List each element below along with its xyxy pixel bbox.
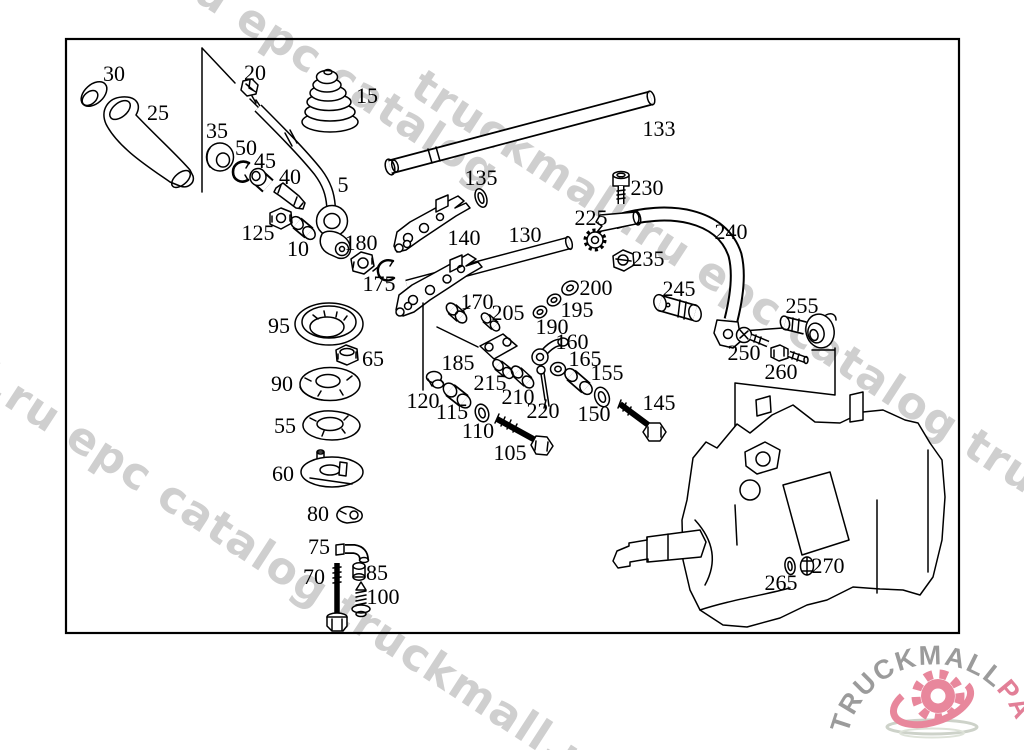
part-90-detent-plate: [300, 368, 360, 401]
part-80-clamp: [337, 507, 362, 523]
part-label-30: 30: [103, 61, 125, 86]
part-label-65: 65: [362, 346, 384, 371]
part-label-165: 165: [569, 346, 602, 371]
exploded-parts-diagram: 5101520253035404550556065707580859095100…: [0, 0, 1024, 750]
part-label-5: 5: [338, 172, 349, 197]
part-135-ring: [473, 187, 489, 208]
part-label-55: 55: [274, 413, 296, 438]
part-label-95: 95: [268, 313, 290, 338]
part-label-230: 230: [631, 175, 664, 200]
part-label-100: 100: [367, 584, 400, 609]
part-95-cover-ring: [295, 303, 363, 345]
part-label-150: 150: [578, 401, 611, 426]
part-label-220: 220: [527, 398, 560, 423]
part-200-washer: [559, 278, 580, 297]
part-label-10: 10: [287, 236, 309, 261]
part-label-235: 235: [632, 246, 665, 271]
part-label-20: 20: [244, 60, 266, 85]
part-label-260: 260: [765, 359, 798, 384]
epc-diagram-page: truckmall.ru epc catalogtruckmall.ru epc…: [0, 0, 1024, 750]
part-label-240: 240: [715, 219, 748, 244]
part-label-133: 133: [643, 116, 676, 141]
part-label-25: 25: [147, 100, 169, 125]
part-label-80: 80: [307, 501, 329, 526]
part-label-265: 265: [765, 570, 798, 595]
part-85-bushing: [353, 563, 365, 580]
logo-gear-hole: [931, 689, 946, 704]
part-label-145: 145: [643, 390, 676, 415]
part-165-ring: [551, 363, 566, 376]
part-label-140: 140: [448, 225, 481, 250]
part-230-bolt: [613, 172, 629, 205]
part-225-star-washer: [586, 231, 605, 250]
part-label-200: 200: [580, 275, 613, 300]
part-70-bolt: [327, 563, 347, 631]
part-65-nut: [336, 345, 358, 365]
part-60-plate: [301, 450, 363, 487]
part-label-215: 215: [474, 370, 507, 395]
part-label-130: 130: [509, 222, 542, 247]
part-label-255: 255: [786, 293, 819, 318]
part-75-elbow: [336, 544, 369, 563]
part-35-ring: [207, 143, 234, 171]
part-15-bellows: [302, 70, 358, 133]
part-label-250: 250: [728, 340, 761, 365]
part-label-270: 270: [812, 553, 845, 578]
part-label-185: 185: [442, 350, 475, 375]
part-label-15: 15: [356, 83, 378, 108]
part-label-175: 175: [363, 271, 396, 296]
part-label-195: 195: [561, 297, 594, 322]
part-label-50: 50: [235, 135, 257, 160]
part-label-45: 45: [254, 148, 276, 173]
part-label-75: 75: [308, 534, 330, 559]
part-label-90: 90: [271, 371, 293, 396]
part-label-105: 105: [494, 440, 527, 465]
part-label-180: 180: [345, 230, 378, 255]
part-133-rod: [384, 90, 657, 176]
part-label-85: 85: [366, 560, 388, 585]
part-label-225: 225: [575, 205, 608, 230]
part-label-170: 170: [461, 289, 494, 314]
part-label-40: 40: [279, 164, 301, 189]
part-label-205: 205: [492, 300, 525, 325]
part-label-70: 70: [303, 564, 325, 589]
part-185-link: [480, 334, 517, 359]
part-label-60: 60: [272, 461, 294, 486]
part-label-245: 245: [663, 276, 696, 301]
part-50-circlip: [233, 162, 249, 182]
part-label-35: 35: [206, 118, 228, 143]
part-label-125: 125: [242, 220, 275, 245]
part-label-120: 120: [407, 388, 440, 413]
part-label-135: 135: [465, 165, 498, 190]
part-label-115: 115: [436, 399, 468, 424]
part-55-plate: [303, 411, 360, 440]
